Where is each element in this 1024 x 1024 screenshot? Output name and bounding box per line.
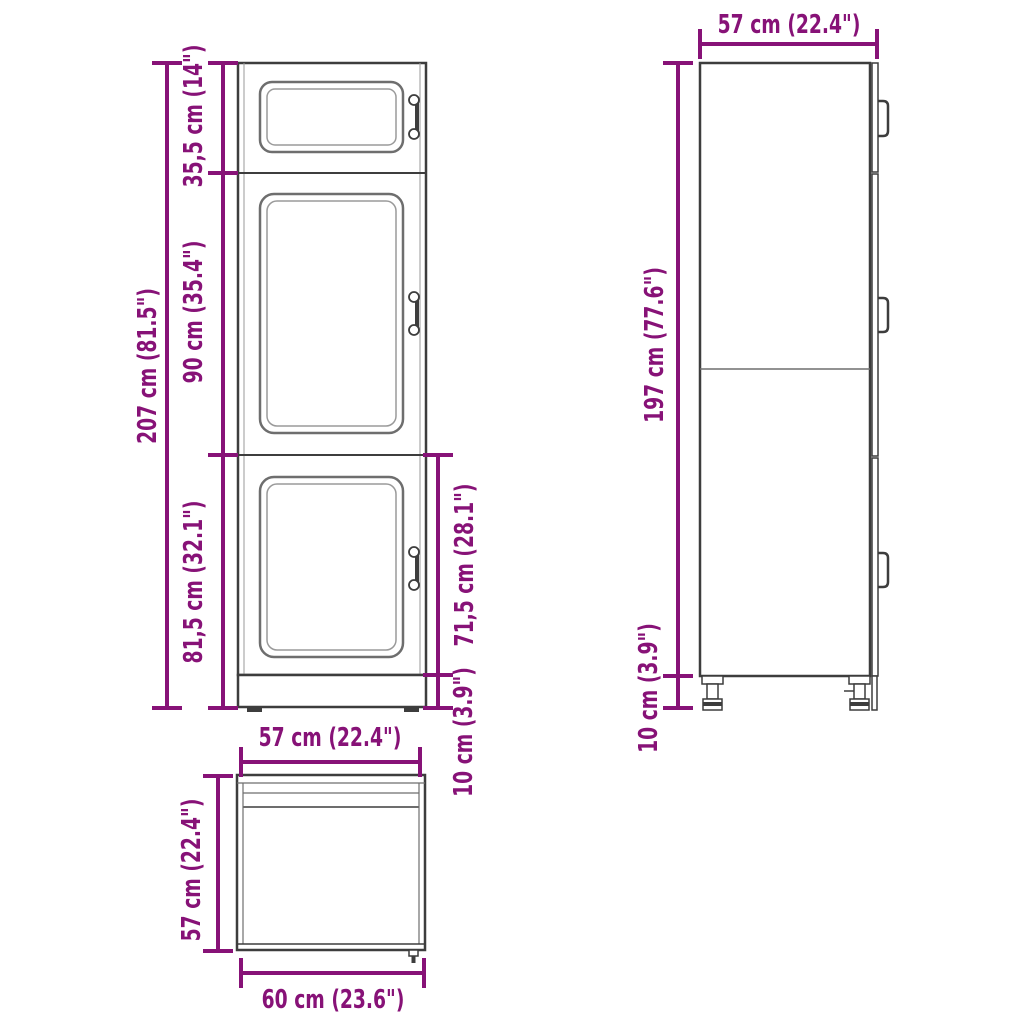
side-body-height-label: 197 cm (77.6"): [642, 267, 668, 423]
front-middle-section-label: 90 cm (35.4"): [181, 241, 207, 384]
dim-top-width: [241, 958, 424, 988]
front-foot-right: [404, 707, 419, 712]
front-total-height-label: 207 cm (81.5"): [135, 288, 161, 444]
front-plinth: [238, 675, 426, 707]
front-foot-left: [247, 707, 262, 712]
diagram-linework: [0, 0, 1024, 1024]
front-view: [238, 63, 426, 712]
front-lower-door-height-label: 71,5 cm (28.1"): [452, 484, 478, 647]
side-leg-back: [702, 676, 723, 710]
top-carcass: [237, 775, 425, 950]
side-middle-handle-icon: [878, 298, 888, 332]
side-view: [700, 63, 888, 710]
front-top-section-label: 35,5 cm (14"): [181, 45, 207, 188]
side-top-handle-icon: [878, 101, 888, 136]
dimension-diagram: 207 cm (81.5") 35,5 cm (14") 90 cm (35.4…: [0, 0, 1024, 1024]
front-plinth-height-label: 10 cm (3.9"): [451, 667, 477, 797]
dim-front-sections: [208, 63, 238, 708]
top-view: [237, 775, 425, 963]
side-depth-label: 57 cm (22.4"): [718, 12, 861, 38]
top-handle-knob-icon: [409, 950, 418, 963]
front-bottom-section-label: 81,5 cm (32.1"): [181, 501, 207, 664]
side-door-edge: [872, 63, 878, 676]
side-door-bottom-edge: [872, 676, 877, 710]
front-width-label: 57 cm (22.4"): [259, 725, 402, 751]
top-view-depth-label: 57 cm (22.4"): [179, 799, 205, 942]
dim-top-depth: [203, 776, 233, 951]
side-bottom-handle-icon: [878, 553, 888, 587]
front-carcass: [238, 63, 426, 675]
side-leg-front: [844, 676, 870, 710]
side-leg-height-label: 10 cm (3.9"): [636, 623, 662, 753]
top-view-width-label: 60 cm (23.6"): [262, 987, 405, 1013]
